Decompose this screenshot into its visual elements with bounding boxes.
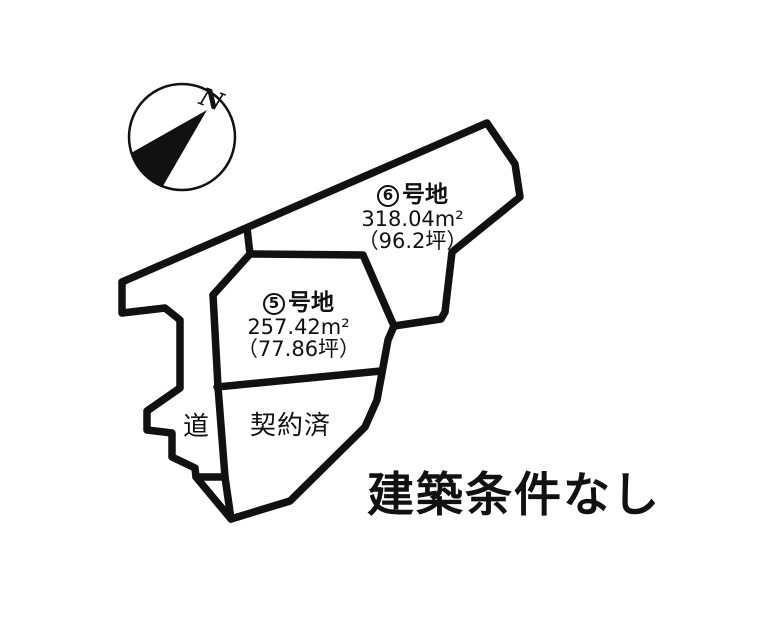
land-plot-diagram: N 6 号地 318.04m² （96.2坪） 5 号地 257.42m² （7… [0,0,758,624]
parcel6-label: 6 号地 318.04m² （96.2坪） [320,184,505,253]
parcel5-name-suffix: 号地 [288,292,334,316]
parcel6-area-tsubo: （96.2坪） [358,231,468,253]
parcel5-name: 5 号地 [263,292,334,316]
compass-north-needle [131,110,207,186]
parcel6-number-badge: 6 [377,185,399,207]
parcel6-name: 6 号地 [377,184,448,208]
parcel5-area-tsubo: （77.86坪） [237,339,360,361]
contracted-status-label: 契約済 [250,405,331,442]
parcel5-contracted-divider-line [217,371,381,387]
parcel6-area-sqm: 318.04m² [361,209,463,231]
road-label: 道 [183,406,209,443]
parcel5-label: 5 号地 257.42m² （77.86坪） [206,292,391,361]
building-conditions-note: 建築条件なし [367,456,661,525]
parcel5-number-badge: 5 [263,293,285,315]
parcel5-area-sqm: 257.42m² [247,317,349,339]
parcel6-name-suffix: 号地 [402,184,448,208]
